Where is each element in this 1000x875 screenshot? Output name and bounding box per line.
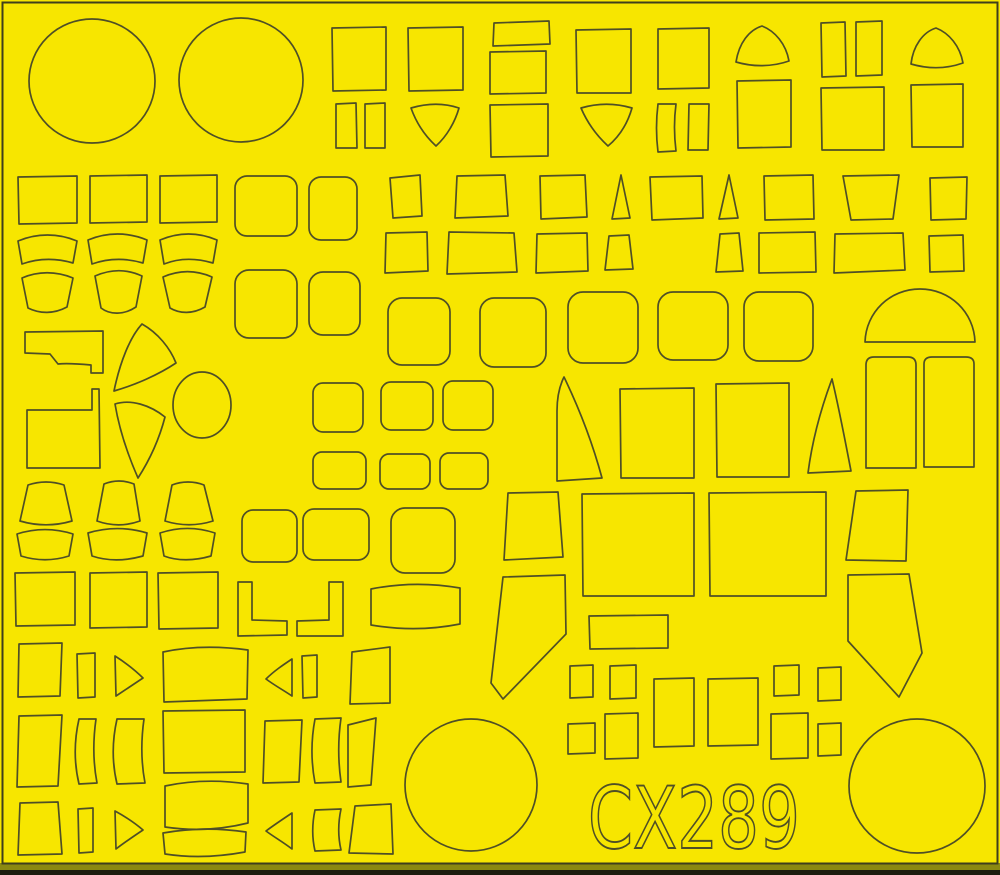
product-code-text: CX289 bbox=[588, 769, 800, 869]
sheet-background bbox=[0, 0, 1000, 875]
mask-sheet: CX289 bbox=[0, 0, 1000, 875]
mask-sheet-svg: CX289 bbox=[0, 0, 1000, 875]
sheet-bottom-edge-dark bbox=[0, 870, 1000, 875]
